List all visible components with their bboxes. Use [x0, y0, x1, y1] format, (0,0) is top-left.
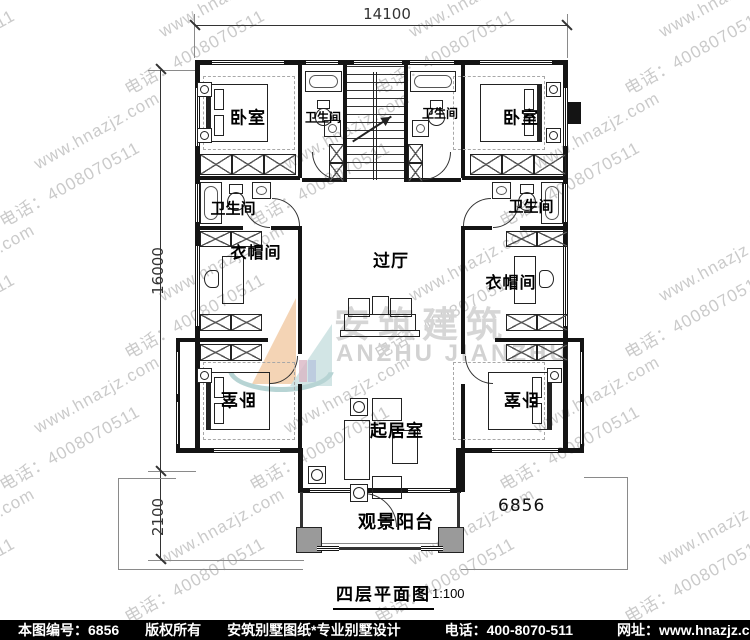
- label-balcony: 观景阳台: [358, 508, 434, 534]
- sheet-scale: 1:100: [432, 586, 465, 601]
- label-bathroom-left: 卫生间: [210, 198, 255, 219]
- label-bedroom-bottom-left: 卧室: [220, 389, 256, 414]
- label-bedroom-top-left: 卧室: [230, 104, 266, 129]
- footer-bar: 本图编号：6856 版权所有 安筑别墅图纸*专业别墅设计 电话：400-8070…: [0, 620, 750, 640]
- footer-studio: 安筑别墅图纸*专业别墅设计: [227, 620, 400, 640]
- label-bathroom-right: 卫生间: [508, 196, 553, 217]
- floor-plan-sheet: www.hnazjz.com电话：4008070511www.hnazjz.co…: [0, 0, 750, 640]
- sheet-title: 四层平面图: [333, 580, 434, 610]
- label-cloakroom-left: 衣帽间: [230, 239, 281, 263]
- label-cloakroom-right: 衣帽间: [485, 269, 536, 293]
- label-bedroom-top-right: 卧室: [503, 104, 539, 129]
- label-living-room: 起居室: [370, 417, 424, 442]
- footer-phone: 电话：400-8070-511: [445, 620, 573, 640]
- footer-drawing-no: 本图编号：6856: [18, 620, 119, 640]
- footer-copyright: 版权所有: [145, 620, 201, 640]
- label-hall: 过厅: [373, 247, 409, 272]
- label-bathroom-top-right: 卫生间: [422, 105, 458, 122]
- label-bathroom-top-left: 卫生间: [305, 109, 341, 126]
- label-bedroom-bottom-right: 卧室: [503, 389, 539, 414]
- room-labels: 卧室 卫生间 卫生间 卧室 卫生间 卫生间 衣帽间 衣帽间 过厅 起居室 卧室 …: [0, 0, 750, 640]
- plan-number: 6856: [498, 496, 545, 516]
- footer-website: 网址：www.hnazjz.com: [617, 620, 750, 640]
